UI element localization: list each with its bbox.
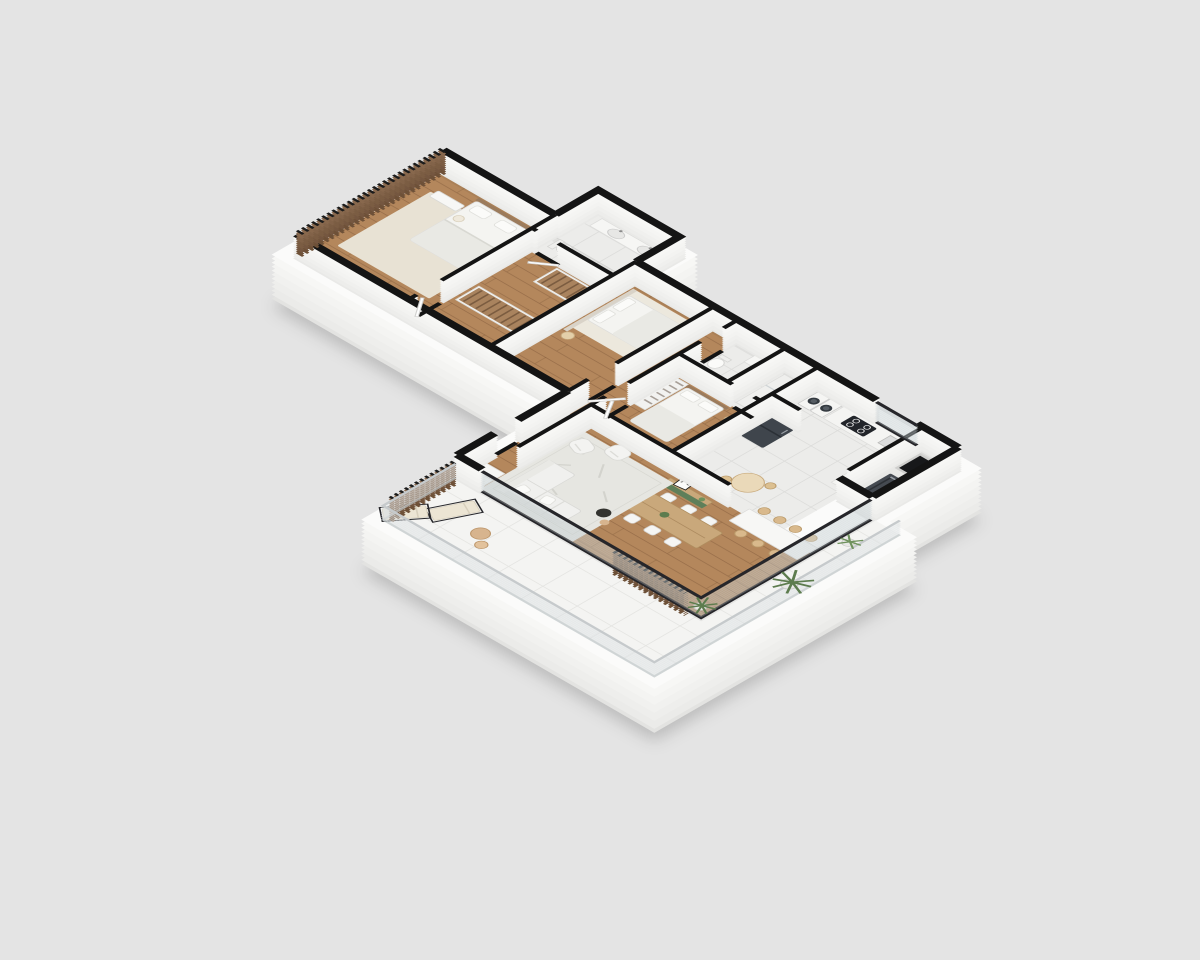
floor-plan-render <box>0 0 1200 960</box>
floor-plan-stage <box>0 0 1200 960</box>
